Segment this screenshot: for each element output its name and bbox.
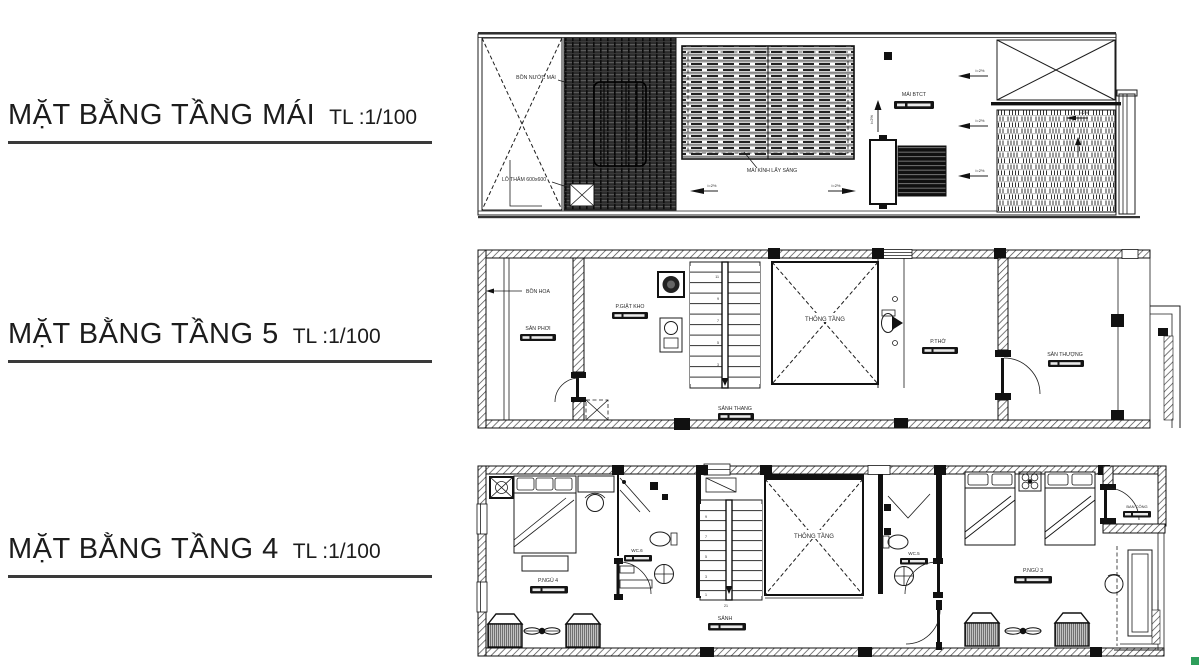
- svg-text:i=2%: i=2%: [975, 168, 984, 173]
- laundry-label: P.GIẶT KHO: [616, 303, 645, 310]
- worship-room-label: P.THỜ: [930, 338, 946, 345]
- area-badge: [624, 555, 652, 562]
- balcony-label: BAN CÔNG: [1126, 504, 1147, 509]
- bedroom3-label: P.NGỦ 3: [1023, 567, 1043, 574]
- svg-text:3: 3: [705, 575, 707, 579]
- title-roof-scale: TL :1/100: [329, 106, 417, 129]
- wardrobe-icon: [1055, 613, 1089, 646]
- title-floor4-scale: TL :1/100: [293, 540, 381, 563]
- area-badge: [894, 101, 934, 109]
- desk-chair-icon: [578, 476, 614, 512]
- floor5-partition-door: [555, 258, 608, 420]
- toilet-icon: [888, 535, 908, 549]
- svg-text:5: 5: [717, 341, 719, 345]
- roof-inspection-hole-label: LỖ THĂM 600x600: [502, 176, 546, 183]
- roof-water-tank-label: BỒN NƯỚC MÁI: [516, 74, 556, 81]
- svg-text:5: 5: [705, 555, 707, 559]
- floor4-bedroom4: P.NGỦ 4: [488, 476, 614, 647]
- title-floor5-scale: TL :1/100: [293, 325, 381, 348]
- svg-text:i=2%: i=2%: [975, 118, 984, 123]
- floor4-void: THÔNG TẦNG: [764, 474, 864, 598]
- floor4-wc6: WC.6: [614, 474, 701, 600]
- area-badge: [900, 558, 928, 565]
- flower-box-callout: BỒN HOA: [486, 288, 550, 295]
- svg-text:7: 7: [717, 319, 719, 323]
- ceiling-fan-icon: [524, 628, 560, 634]
- floor-drain-icon: [893, 341, 898, 346]
- title-floor5-label: MẶT BẰNG TẦNG 5: [8, 318, 279, 350]
- roof-slope-arrow-right: i=2%: [828, 183, 856, 194]
- area-badge: [1123, 511, 1151, 518]
- svg-text:i=2%: i=2%: [1079, 110, 1088, 115]
- floor5-terrace-door: [995, 258, 1040, 420]
- floor5-wc: [878, 258, 904, 388]
- floor5-parapet-detail: [1150, 258, 1180, 428]
- area-badge: [922, 347, 958, 354]
- roof-slope-arrows-mid: i=2% i=2% i=2%: [958, 68, 988, 179]
- svg-text:i=2%: i=2%: [975, 68, 984, 73]
- floor5-terrace-edge: [1111, 258, 1124, 420]
- roof-tile-area: i=2%: [997, 110, 1115, 212]
- svg-text:9: 9: [705, 515, 707, 519]
- single-bed-icon: [1045, 472, 1095, 545]
- roof-skylight-label: MÁI KÍNH LẤY SÁNG: [747, 167, 797, 174]
- svg-text:i=2%: i=2%: [831, 183, 840, 188]
- roof-concrete-label: MÁI BTCT: [902, 91, 927, 98]
- toilet-icon: [650, 532, 670, 546]
- title-floor4-plan: MẶT BẰNG TẦNG 4TL :1/100: [8, 533, 432, 578]
- door-arc: [905, 562, 937, 594]
- hall-label: SẢNH: [718, 615, 733, 622]
- watermark-fragment: [1191, 657, 1199, 665]
- drawing-sheet: MẶT BẰNG TẦNG MÁITL :1/100 MẶT BẰNG TẦNG…: [0, 0, 1200, 666]
- wc6-label: WC.6: [631, 548, 643, 553]
- floor5-stair: 11 9 7 5 3: [690, 262, 760, 388]
- floor4-plan: P.NGỦ 4 WC.6: [474, 460, 1184, 666]
- svg-text:i=2%: i=2%: [707, 183, 716, 188]
- floor4-wc5: WC.5: [878, 474, 943, 650]
- svg-text:9: 9: [717, 297, 719, 301]
- floor4-stair: 9 7 5 3 1 21: [700, 478, 762, 608]
- area-badge: [612, 312, 648, 319]
- svg-text:3: 3: [717, 363, 719, 367]
- floor4-corner-detail: [1114, 600, 1164, 650]
- nightstand-icon: [1019, 472, 1041, 491]
- door-arc: [619, 562, 651, 594]
- title-roof-plan: MẶT BẰNG TẦNG MÁITL :1/100: [8, 99, 432, 144]
- floor-drain-icon: [893, 297, 898, 302]
- svg-text:21: 21: [724, 604, 728, 608]
- title-floor5-plan: MẶT BẰNG TẦNG 5TL :1/100: [8, 318, 432, 363]
- area-badge: [1048, 360, 1084, 367]
- wardrobe-icon: [566, 614, 600, 647]
- svg-text:BỒN HOA: BỒN HOA: [526, 288, 550, 295]
- area-badge: [1014, 576, 1052, 584]
- desk-chair-icon: [1105, 550, 1152, 636]
- wardrobe-icon: [488, 614, 522, 647]
- wc5-label: WC.5: [908, 551, 920, 556]
- floor5-plan: BỒN HOA SÂN PHƠI P.GIẶT KHO: [474, 240, 1184, 438]
- stair-hall-label: SẢNH THANG: [718, 405, 752, 412]
- area-badge: [708, 623, 746, 631]
- door-leaf: [892, 316, 903, 330]
- single-bed-icon: [965, 472, 1015, 545]
- roof-chimney: [870, 135, 946, 209]
- roof-right-void: [997, 40, 1115, 100]
- door-arc: [906, 610, 940, 644]
- area-badge: [530, 586, 568, 594]
- roof-left-void: [482, 38, 562, 210]
- ceiling-fan-icon: [1005, 628, 1041, 634]
- svg-text:THÔNG TẦNG: THÔNG TẦNG: [805, 316, 845, 323]
- roof-slope-arrow-left: i=2%: [690, 183, 718, 194]
- area-badge: [520, 334, 556, 341]
- svg-text:i=2%: i=2%: [869, 115, 874, 124]
- floor5-void: THÔNG TẦNG: [772, 262, 878, 384]
- title-floor4-label: MẶT BẰNG TẦNG 4: [8, 533, 279, 565]
- washing-machine-icon: [658, 272, 684, 297]
- ac-unit-icon: [490, 477, 513, 498]
- svg-text:1: 1: [705, 593, 707, 597]
- roof-slope-arrow-up: i=2%: [869, 100, 882, 132]
- roof-right-parapet: [1117, 90, 1137, 214]
- drying-yard-label: SÂN PHƠI: [525, 325, 550, 332]
- roof-dark-deck: [564, 38, 676, 210]
- double-bed-icon: [514, 476, 576, 571]
- svg-text:THÔNG TẦNG: THÔNG TẦNG: [794, 533, 834, 540]
- title-roof-label: MẶT BẰNG TẦNG MÁI: [8, 99, 315, 131]
- roof-plan: BỒN NƯỚC MÁI LỖ THĂM 600x600 MÁI KÍNH LẤ…: [474, 32, 1140, 228]
- laundry-counter-icon: [660, 318, 682, 352]
- roof-skylight: [682, 46, 854, 159]
- terrace-label: SÂN THƯỢNG: [1047, 351, 1083, 358]
- roof-wall-divider: [991, 102, 1121, 105]
- svg-text:11: 11: [715, 275, 719, 279]
- area-badge: [718, 413, 754, 420]
- wardrobe-icon: [965, 613, 999, 646]
- bedroom4-label: P.NGỦ 4: [538, 577, 558, 584]
- floor4-bedroom3: P.NGỦ 3: [965, 472, 1152, 646]
- roof-column: [884, 52, 892, 60]
- svg-text:7: 7: [705, 535, 707, 539]
